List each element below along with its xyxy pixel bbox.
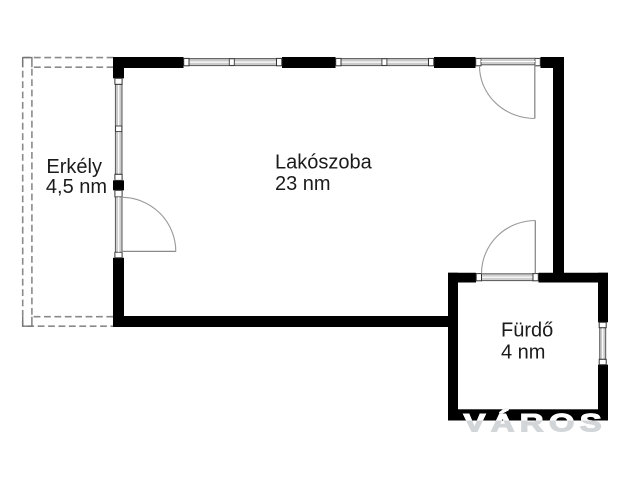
svg-text:4 nm: 4 nm: [501, 341, 545, 363]
svg-text:Lakószoba: Lakószoba: [275, 152, 373, 174]
svg-text:Erkély: Erkély: [46, 156, 102, 178]
svg-text:23 nm: 23 nm: [275, 173, 331, 195]
svg-text:Fürdő: Fürdő: [501, 320, 553, 342]
svg-text:4,5 nm: 4,5 nm: [46, 176, 107, 198]
